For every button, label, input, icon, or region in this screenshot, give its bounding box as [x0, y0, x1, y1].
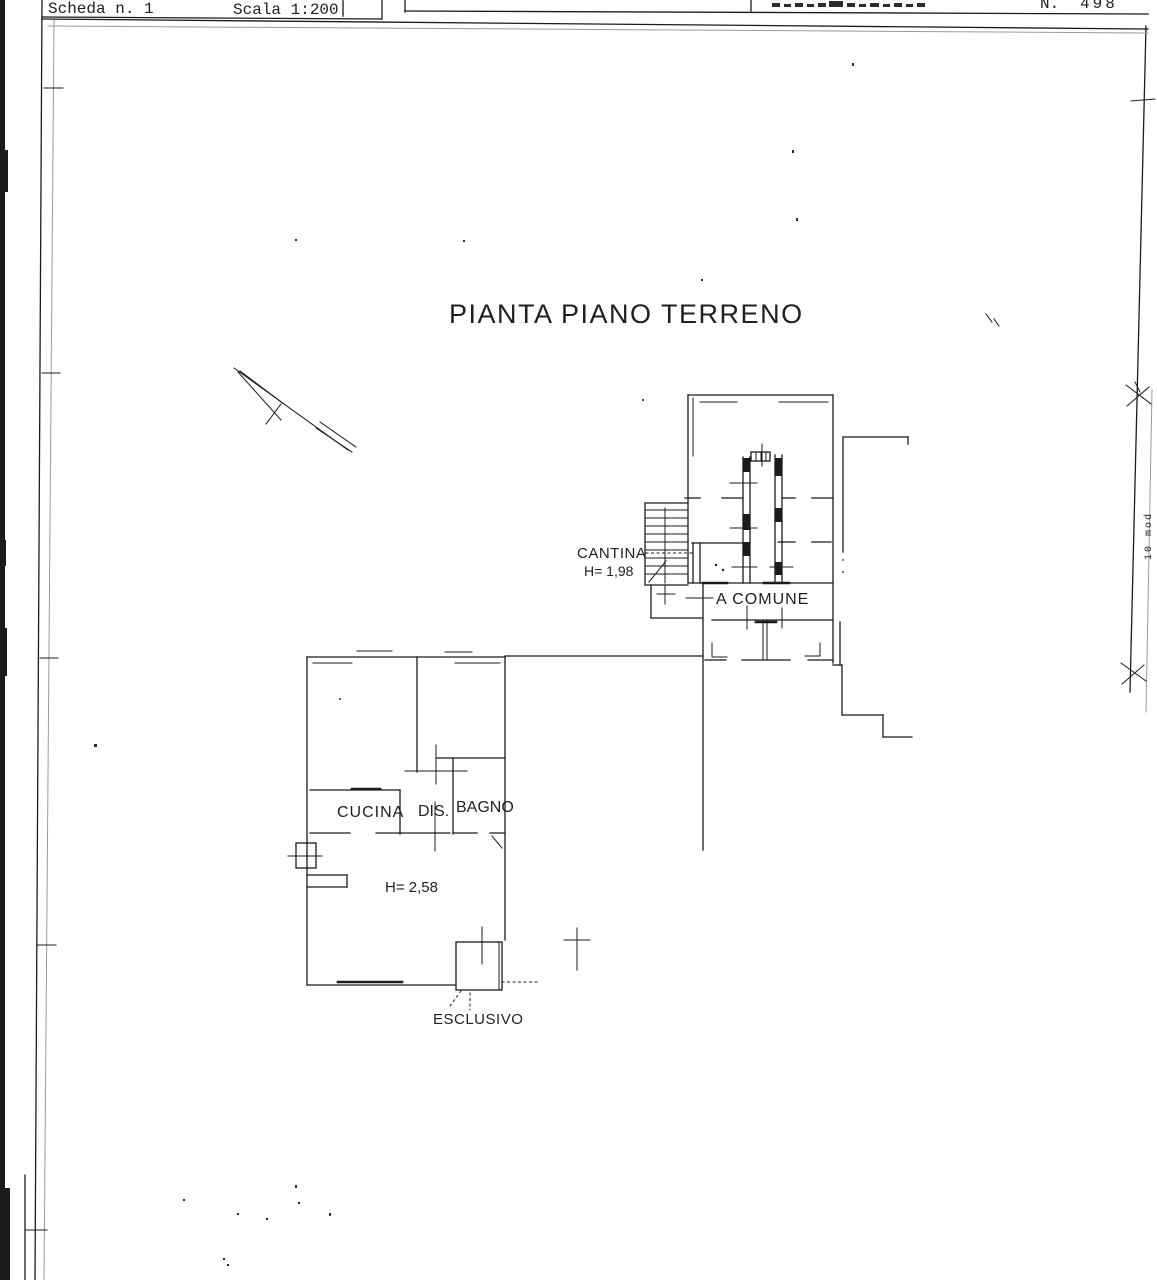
pen-scribble [234, 368, 356, 452]
doc-number-prefix: N. [1040, 0, 1059, 13]
illegible-stamp-fragment [772, 1, 925, 7]
cantina-label: CANTINA [577, 545, 646, 562]
ink-mark [986, 314, 999, 326]
scanned-floor-plan-sheet: Scheda n. 1 Scala 1:200 N. 498 PIANTA PI… [0, 0, 1157, 1280]
scan-edge-band [0, 0, 10, 1280]
cantina-height-label: H= 1,98 [584, 563, 634, 579]
scheda-label: Scheda n. 1 [48, 0, 154, 18]
doc-number: N. 498 [1040, 0, 1118, 13]
height-label: H= 2,58 [385, 879, 438, 896]
lower-building: CUCINA DIS. BAGNO H= 2,58 ESCLUSIVO [288, 651, 590, 1028]
doc-number-value: 498 [1080, 0, 1118, 13]
cut-mark-lower [1121, 663, 1146, 684]
header-band: Scheda n. 1 Scala 1:200 N. 498 [42, 0, 1148, 33]
boundary-steps [833, 437, 912, 737]
cucina-label: CUCINA [337, 804, 404, 821]
esclusivo-court [450, 927, 590, 1010]
upper-building: CANTINA H= 1,98 A COMUNE [577, 395, 912, 850]
margin-code-text: 10 mod [1143, 512, 1155, 560]
plan-title: PIANTA PIANO TERRENO [449, 299, 804, 329]
bagno-label: BAGNO [456, 799, 514, 816]
dis-label: DIS. [418, 803, 449, 820]
a-comune-label: A COMUNE [716, 591, 809, 608]
floor-plan-svg: Scheda n. 1 Scala 1:200 N. 498 PIANTA PI… [0, 0, 1157, 1280]
page-frame [25, 0, 1155, 1280]
esclusivo-label: ESCLUSIVO [433, 1011, 523, 1028]
scala-label: Scala 1:200 [233, 1, 339, 19]
cut-mark-upper [1126, 382, 1151, 406]
scan-specks [94, 63, 854, 1266]
annex-rooms [705, 620, 833, 660]
